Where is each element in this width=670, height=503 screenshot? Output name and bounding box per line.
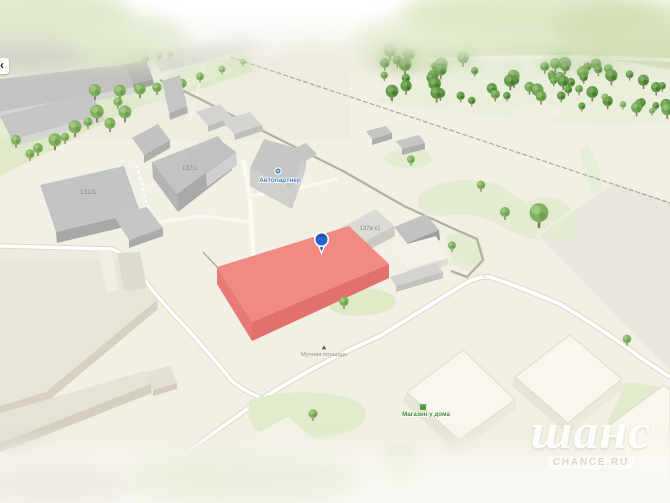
svg-text:Мучная площадь: Мучная площадь <box>301 352 347 358</box>
svg-text:Магазин у дома: Магазин у дома <box>402 411 450 418</box>
svg-text:Автопартнер: Автопартнер <box>259 177 301 184</box>
svg-text:137в к1: 137в к1 <box>360 226 381 232</box>
svg-text:131/1: 131/1 <box>80 189 97 196</box>
svg-text:137/2: 137/2 <box>182 165 199 172</box>
